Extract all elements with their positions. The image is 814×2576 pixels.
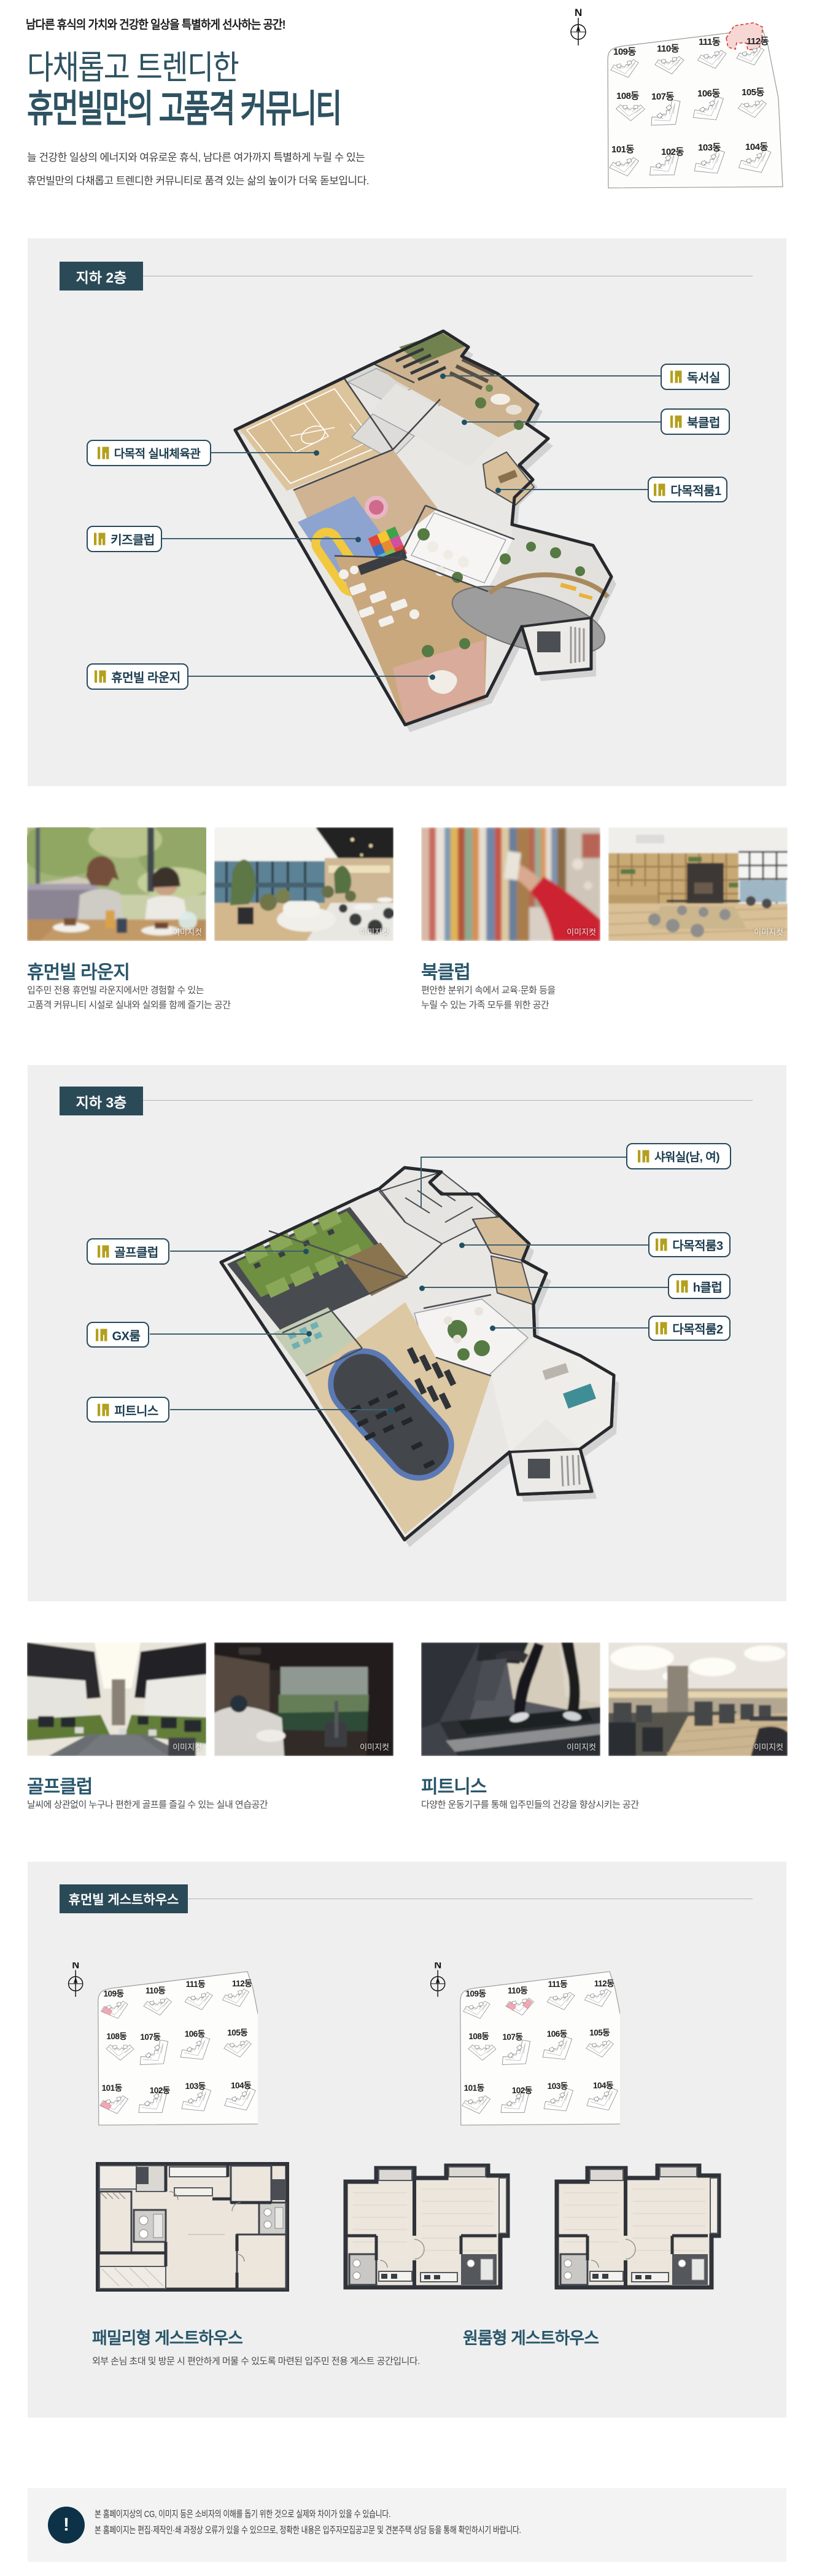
svg-text:108동: 108동 [106, 2032, 126, 2041]
svg-text:104동: 104동 [745, 142, 769, 152]
svg-text:107동: 107동 [140, 2032, 160, 2042]
svg-text:106동: 106동 [547, 2029, 567, 2039]
svg-text:103동: 103동 [185, 2082, 206, 2091]
svg-text:103동: 103동 [698, 142, 721, 153]
svg-text:112동: 112동 [594, 1979, 614, 1988]
svg-text:109동: 109동 [613, 47, 637, 57]
svg-text:N: N [72, 1962, 79, 1971]
svg-text:108동: 108동 [468, 2032, 489, 2041]
svg-text:105동: 105동 [227, 2028, 247, 2037]
svg-text:N: N [434, 1962, 441, 1971]
svg-text:101동: 101동 [102, 2083, 122, 2093]
svg-text:104동: 104동 [231, 2081, 251, 2090]
svg-text:109동: 109동 [466, 1989, 486, 1998]
svg-text:105동: 105동 [742, 87, 765, 98]
svg-text:103동: 103동 [548, 2082, 568, 2091]
svg-text:107동: 107동 [502, 2032, 522, 2042]
svg-text:102동: 102동 [661, 147, 684, 157]
svg-text:106동: 106동 [185, 2029, 205, 2039]
svg-text:104동: 104동 [593, 2081, 613, 2090]
svg-text:110동: 110동 [145, 1986, 165, 1996]
svg-text:N: N [575, 7, 582, 18]
svg-text:102동: 102동 [512, 2086, 532, 2095]
svg-text:110동: 110동 [508, 1986, 527, 1996]
svg-text:111동: 111동 [699, 37, 721, 47]
svg-text:110동: 110동 [657, 44, 680, 54]
svg-text:108동: 108동 [616, 91, 640, 101]
svg-text:102동: 102동 [150, 2086, 170, 2095]
svg-text:111동: 111동 [186, 1980, 206, 1989]
svg-text:109동: 109동 [104, 1989, 124, 1998]
svg-text:101동: 101동 [464, 2083, 484, 2093]
svg-text:105동: 105동 [589, 2028, 610, 2037]
svg-text:107동: 107동 [651, 92, 675, 102]
svg-text:111동: 111동 [548, 1980, 568, 1989]
svg-text:101동: 101동 [611, 144, 635, 155]
svg-text:112동: 112동 [232, 1979, 252, 1988]
svg-text:112동: 112동 [746, 36, 769, 47]
svg-text:106동: 106동 [697, 88, 721, 99]
